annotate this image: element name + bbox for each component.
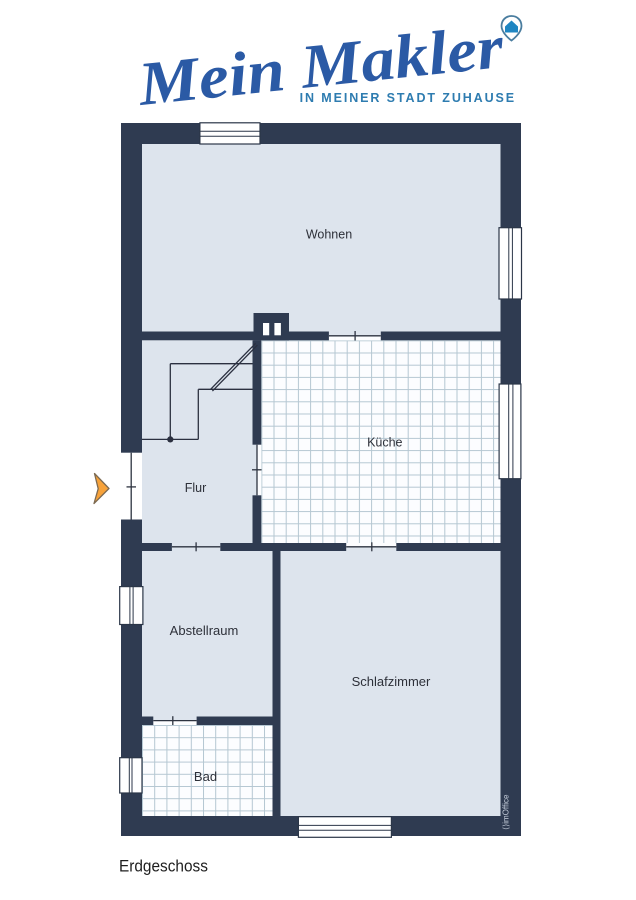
svg-text:Küche: Küche: [367, 436, 402, 450]
svg-text:Schlafzimmer: Schlafzimmer: [352, 674, 431, 689]
svg-text:Flur: Flur: [185, 481, 207, 495]
svg-text:Abstellraum: Abstellraum: [170, 623, 239, 638]
svg-text:IN MEINER STADT ZUHAUSE: IN MEINER STADT ZUHAUSE: [300, 91, 516, 105]
svg-text:Bad: Bad: [194, 769, 217, 784]
svg-text:Erdgeschoss: Erdgeschoss: [119, 857, 208, 876]
svg-text:⟨⟩imOffice: ⟨⟩imOffice: [502, 794, 511, 830]
svg-text:Wohnen: Wohnen: [306, 228, 352, 242]
